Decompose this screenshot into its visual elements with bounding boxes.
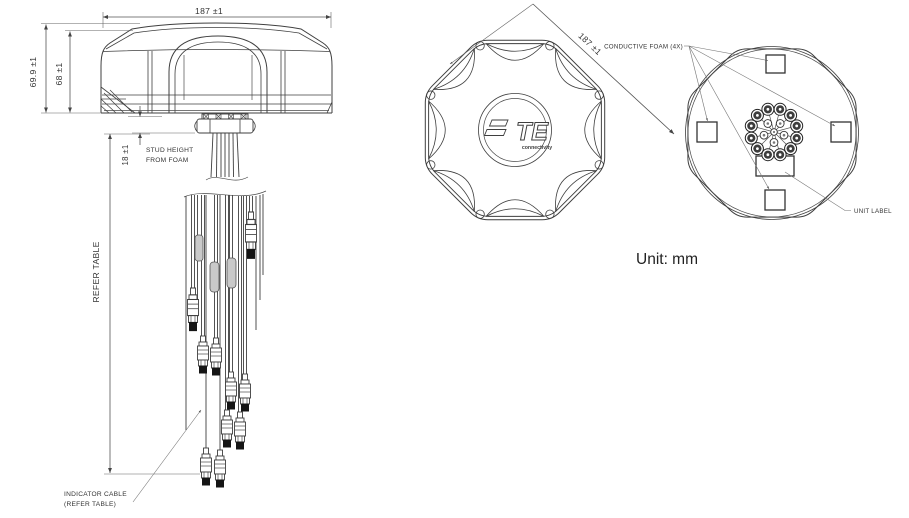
side-view: 187 ±1 69.9 ±1 68 ±1 18 ±1 STUD HEIGHT F… — [28, 6, 332, 508]
top-view: TE connectivity 187 ±1 — [425, 4, 674, 220]
dome-top-outline-inner — [429, 44, 602, 217]
unit-label-text: UNIT LABEL — [854, 208, 892, 215]
dim-width-side: 187 ±1 — [195, 6, 223, 16]
stud-note-line2: FROM FOAM — [146, 157, 189, 164]
refer-table-note: REFER TABLE — [91, 241, 101, 302]
foam-pad-left — [697, 122, 717, 142]
unit-label-outline — [756, 156, 794, 176]
dim-height-total: 69.9 ±1 — [28, 57, 38, 88]
cable-exit-cluster — [745, 103, 802, 160]
te-logo-text: TE — [516, 118, 549, 146]
indicator-cable-note-line2: (REFER TABLE) — [64, 501, 116, 508]
antenna-drawing-svg: 187 ±1 69.9 ±1 68 ±1 18 ±1 STUD HEIGHT F… — [0, 0, 909, 518]
side-view-dimensions: 187 ±1 69.9 ±1 68 ±1 18 ±1 STUD HEIGHT F… — [28, 6, 331, 508]
dim-stud-height: 18 ±1 — [121, 145, 130, 166]
bottom-view: CONDUCTIVE FOAM (4X) UNIT LABEL — [604, 44, 892, 220]
foam-pad-top — [766, 55, 785, 73]
top-view-dimension: 187 ±1 — [450, 4, 674, 134]
conductive-foam-label: CONDUCTIVE FOAM (4X) — [604, 44, 683, 51]
stud-note-line1: STUD HEIGHT — [146, 147, 193, 154]
foam-corner-hatch — [101, 87, 135, 113]
foam-pad-bottom — [765, 190, 785, 210]
te-logo-mark — [490, 120, 509, 126]
cable-cross-sections — [745, 103, 802, 160]
indicator-cable-note-line1: INDICATOR CABLE — [64, 491, 127, 498]
technical-drawing-page: 187 ±1 69.9 ±1 68 ±1 18 ±1 STUD HEIGHT F… — [0, 0, 909, 518]
foam-pad-right — [831, 122, 851, 142]
dome-outline — [101, 23, 332, 113]
cable-bundle-upper — [184, 134, 266, 198]
te-logo: TE connectivity — [479, 94, 553, 167]
te-logo-subtext: connectivity — [522, 145, 552, 151]
dim-width-top: 187 ±1 — [576, 31, 603, 57]
dome-top-outline — [425, 40, 604, 219]
mounting-stud-nut — [195, 114, 256, 133]
dim-height-body: 68 ±1 — [54, 63, 64, 86]
units-note: Unit: mm — [636, 251, 698, 268]
